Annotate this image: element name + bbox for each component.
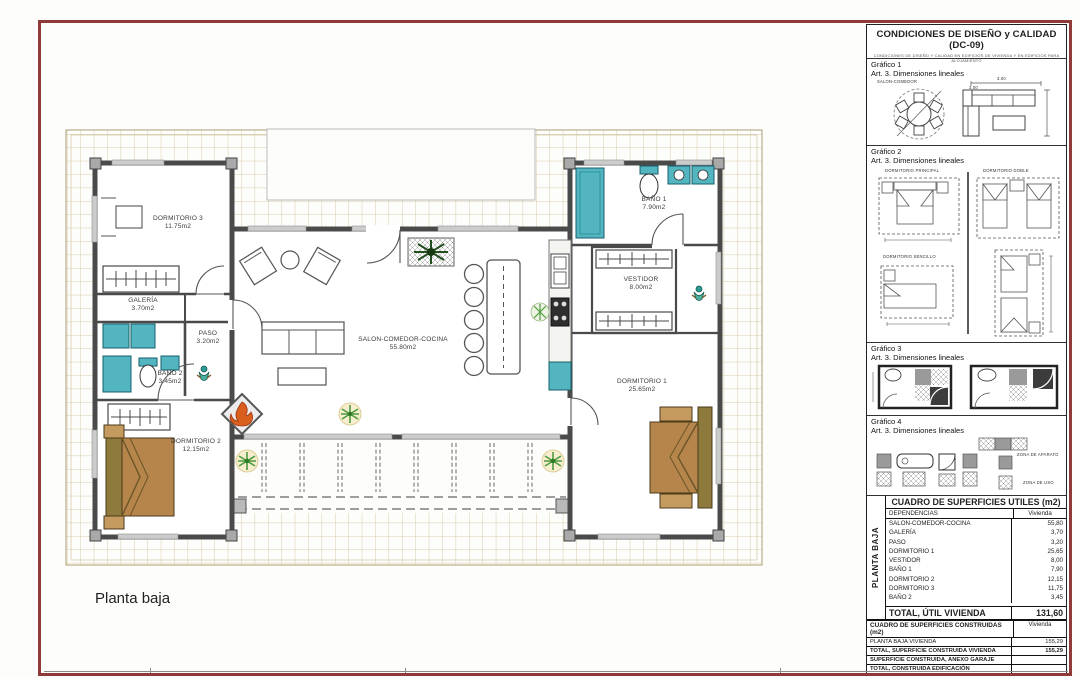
grafico-1-dim: 3.00 (997, 76, 1006, 81)
side-table (281, 251, 299, 269)
utiles-total-row: TOTAL, ÚTIL VIVIENDA 131,60 (886, 606, 1066, 619)
table-row: BAÑO 23,45 (886, 593, 1066, 602)
table-row: DORMITORIO 125,65 (886, 547, 1066, 556)
room-label-bano-1: BAÑO 17.90m2 (641, 196, 666, 213)
superficies-construidas-table: CUADRO DE SUPERFICIES CONSTRUIDAS (m2) V… (867, 621, 1066, 673)
plant-icon (339, 403, 361, 425)
grafico-3-art: Art. 3. Dimensiones lineales (871, 353, 964, 362)
table-row: GALERÍA3,70 (886, 528, 1066, 537)
table-row: BAÑO 17,90 (886, 565, 1066, 574)
bed-dormitorio-2 (104, 425, 174, 529)
grafico-1-section: Gráfico 1 Art. 3. Dimensiones lineales S… (867, 59, 1066, 146)
kitchen-stove (551, 298, 569, 326)
title-block-edge (44, 671, 1068, 672)
grafico-2-section: Gráfico 2 Art. 3. Dimensiones lineales D… (867, 146, 1066, 343)
construidas-table-header: CUADRO DE SUPERFICIES CONSTRUIDAS (m2) V… (867, 621, 1066, 638)
grafico-2-diagram (871, 166, 1064, 340)
grafico-2-label-doble: DORMITORIO DOBLE (983, 168, 1029, 173)
conditions-panel: CONDICIONES DE DISEÑO y CALIDAD (DC-09) … (866, 24, 1067, 674)
title-block-tick (405, 668, 406, 673)
panel-header: CONDICIONES DE DISEÑO y CALIDAD (DC-09) … (867, 25, 1066, 59)
room-label-paso: PASO3.20m2 (197, 330, 220, 347)
grafico-1-room-label: SALON-COMEDOR (877, 79, 917, 84)
grafico-4-section: Gráfico 4 Art. 3. Dimensiones lineales Z… (867, 416, 1066, 495)
grafico-2-label-principal: DORMITORIO PRINCIPAL (885, 168, 939, 173)
table-row: PASO3,20 (886, 538, 1066, 547)
grafico-1-art: Art. 3. Dimensiones lineales (871, 69, 964, 78)
room-label-dormitorio-2: DORMITORIO 212.15m2 (171, 438, 221, 455)
table-row: DORMITORIO 212,15 (886, 575, 1066, 584)
room-label-dormitorio-3: DORMITORIO 311.75m2 (153, 215, 203, 232)
plant-icon (236, 450, 258, 472)
plant-icon (542, 450, 564, 472)
planta-baja-side-label: PLANTA BAJA (867, 496, 886, 619)
table-row: SALON-COMEDOR-COCINA55,80 (886, 519, 1066, 528)
porch-pergola (232, 437, 570, 513)
table-row: VESTIDOR8,00 (886, 556, 1066, 565)
grafico-2-art: Art. 3. Dimensiones lineales (871, 156, 964, 165)
bed-dormitorio-1 (650, 407, 712, 508)
grafico-4-zona-uso: ZONA DE USO (1023, 480, 1054, 485)
room-label-bano-2: BAÑO 23.45m2 (157, 370, 182, 387)
table-row: DORMITORIO 311,75 (886, 584, 1066, 593)
kitchen-fridge (549, 362, 571, 390)
superficies-utiles-table: PLANTA BAJA CUADRO DE SUPERFICIES UTILES… (867, 496, 1066, 621)
sofa (262, 322, 344, 354)
utiles-table-title: CUADRO DE SUPERFICIES UTILES (m2) (886, 496, 1066, 509)
grafico-4-art: Art. 3. Dimensiones lineales (871, 426, 964, 435)
floor-plan-sheet: { "sheet": { "plan_title": "Planta baja"… (0, 0, 1080, 678)
table-row: TOTAL, SUPERFICIE CONSTRUIDA VIVIENDA155… (867, 647, 1066, 656)
title-block-tick (150, 668, 151, 673)
panel-title: CONDICIONES DE DISEÑO y CALIDAD (DC-09) (871, 29, 1062, 51)
entry-recess (267, 129, 535, 200)
grafico-3-section: Gráfico 3 Art. 3. Dimensiones lineales (867, 343, 1066, 417)
room-label-galeria: GALERÍA3.70m2 (128, 297, 158, 314)
entry-plant-icon (408, 238, 454, 266)
grafico-1-diagram (871, 78, 1064, 142)
grafico-3-diagram (871, 362, 1064, 412)
table-row: SUPERFICIE CONSTRUIDA, ANEXO GARAJE (867, 656, 1066, 665)
desk-dormitorio-3 (116, 206, 142, 228)
plan-title: Planta baja (95, 590, 170, 607)
room-label-vestidor: VESTIDOR8.00m2 (624, 276, 659, 293)
wardrobe-dormitorio-3 (103, 266, 179, 292)
dining-set (465, 260, 521, 376)
kitchen-sink (551, 254, 569, 288)
coffee-table (278, 368, 326, 385)
room-label-salon: SALON-COMEDOR-COCINA55.80m2 (358, 336, 448, 353)
title-block-tick (780, 668, 781, 673)
table-row: PLANTA BAJA VIVIENDA155,29 (867, 638, 1066, 647)
utiles-table-header: DEPENDENCIAS Vivienda (886, 509, 1066, 519)
wardrobe-vestidor-top (596, 250, 672, 268)
grafico-2-label-sencillo: DORMITORIO SENCILLO (883, 254, 936, 259)
room-label-dormitorio-1: DORMITORIO 125.65m2 (617, 378, 667, 395)
grafico-1-dim2: 3.00 (969, 85, 978, 90)
wardrobe-vestidor-bottom (596, 312, 672, 330)
grafico-4-zona-aparato: ZONA DE APARATO (1017, 452, 1059, 457)
